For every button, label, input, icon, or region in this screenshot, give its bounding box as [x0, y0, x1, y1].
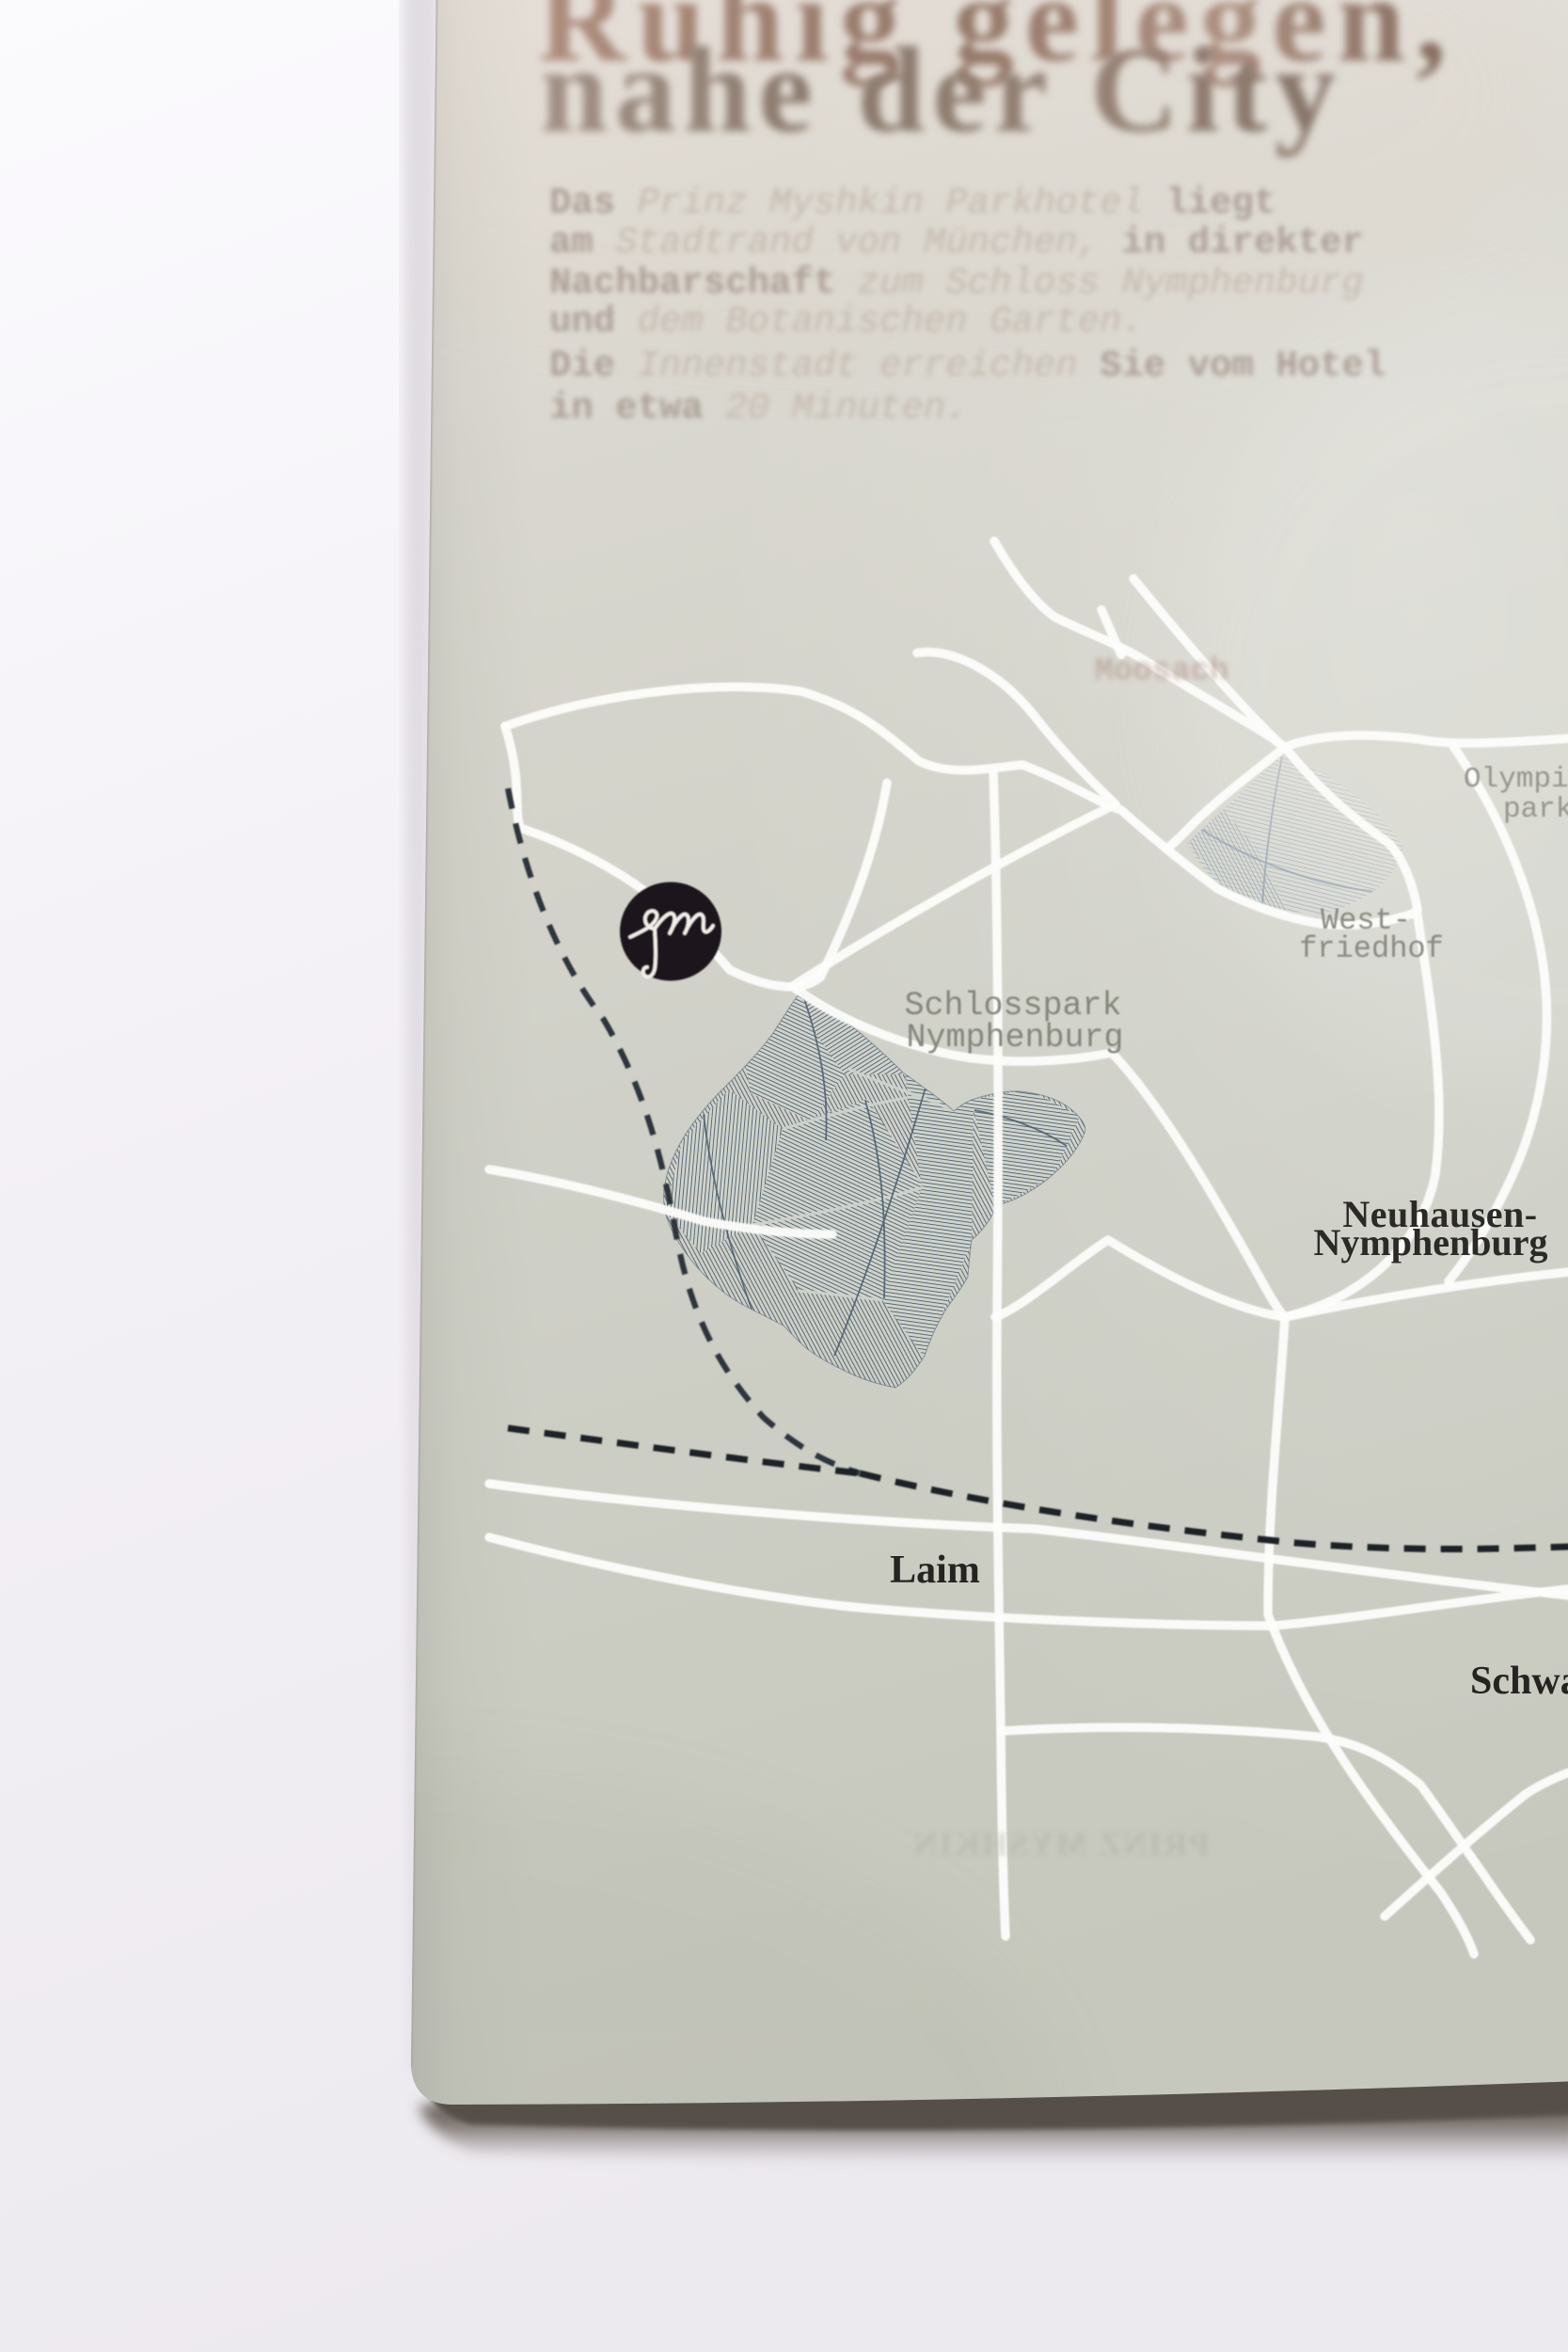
svg-text:am Stadtrand von München, in d: am Stadtrand von München, in direkter: [549, 222, 1364, 263]
svg-text:friedhof: friedhof: [1299, 931, 1444, 966]
svg-text:Schwabing: Schwabing: [1470, 1660, 1568, 1703]
svg-text:nahe der City: nahe der City: [540, 23, 1342, 158]
svg-text:Laim: Laim: [890, 1549, 980, 1592]
svg-text:Nymphenburg: Nymphenburg: [906, 1019, 1123, 1057]
svg-text:und dem Botanischen Garten.: und dem Botanischen Garten.: [549, 301, 1144, 342]
svg-text:in etwa 20 Minuten.: in etwa 20 Minuten.: [549, 388, 968, 429]
svg-text:Olympia-: Olympia-: [1464, 763, 1568, 796]
svg-text:Nymphenburg: Nymphenburg: [1314, 1221, 1548, 1263]
svg-text:Moosach: Moosach: [1095, 654, 1229, 690]
svg-text:Nachbarschaft zum Schloss Nymp: Nachbarschaft zum Schloss Nymphenburg: [549, 262, 1364, 304]
svg-text:Das Prinz Myshkin Parkhotel li: Das Prinz Myshkin Parkhotel liegt: [549, 183, 1275, 224]
svg-text:PRINZ MYSHKIN: PRINZ MYSHKIN: [912, 1825, 1211, 1863]
svg-text:park: park: [1503, 793, 1568, 826]
svg-text:Die Innenstadt erreichen Sie v: Die Innenstadt erreichen Sie vom Hotel: [549, 345, 1386, 387]
